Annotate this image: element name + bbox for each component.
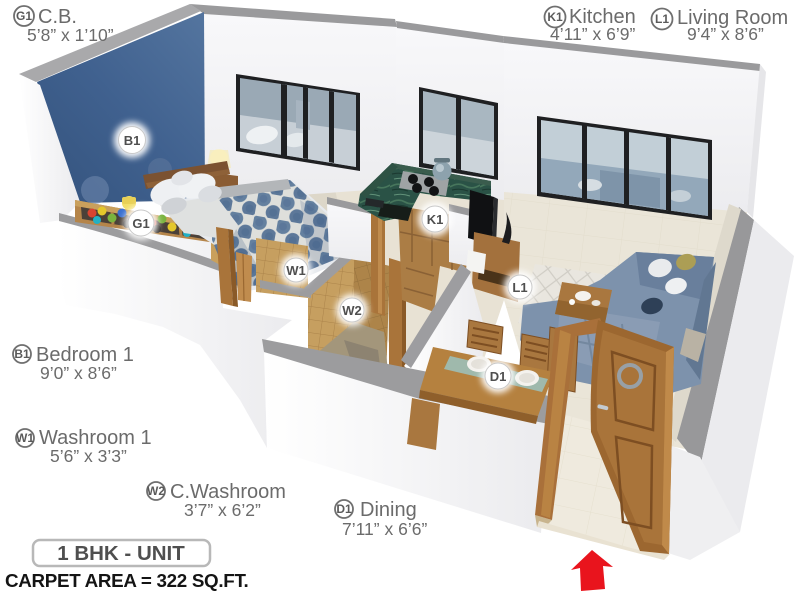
svg-text:K1: K1 bbox=[547, 10, 563, 24]
svg-text:4’11” x 6’9”: 4’11” x 6’9” bbox=[550, 24, 635, 44]
svg-text:G1: G1 bbox=[132, 216, 149, 231]
svg-text:9’0” x 8’6”: 9’0” x 8’6” bbox=[40, 363, 117, 383]
svg-text:L1: L1 bbox=[512, 280, 527, 295]
svg-text:1 BHK - UNIT: 1 BHK - UNIT bbox=[57, 542, 185, 565]
svg-text:W1: W1 bbox=[286, 263, 306, 278]
svg-text:D1: D1 bbox=[336, 502, 352, 516]
svg-text:K1: K1 bbox=[427, 212, 444, 227]
svg-text:B1: B1 bbox=[14, 347, 30, 361]
svg-text:5’8” x 1’10”: 5’8” x 1’10” bbox=[27, 25, 114, 45]
svg-text:W2: W2 bbox=[147, 484, 165, 498]
svg-text:9’4” x 8’6”: 9’4” x 8’6” bbox=[687, 24, 764, 44]
svg-text:7’11” x 6’6”: 7’11” x 6’6” bbox=[342, 519, 427, 539]
svg-text:L1: L1 bbox=[655, 12, 669, 26]
svg-text:B1: B1 bbox=[124, 133, 141, 148]
svg-text:5’6” x 3’3”: 5’6” x 3’3” bbox=[50, 446, 127, 466]
svg-text:G1: G1 bbox=[16, 9, 32, 23]
svg-text:3’7” x 6’2”: 3’7” x 6’2” bbox=[184, 500, 261, 520]
svg-text:W2: W2 bbox=[342, 303, 362, 318]
svg-text:CARPET AREA = 322 SQ.FT.: CARPET AREA = 322 SQ.FT. bbox=[5, 570, 248, 591]
svg-text:Dining: Dining bbox=[360, 499, 417, 521]
svg-text:W1: W1 bbox=[16, 431, 34, 445]
svg-text:D1: D1 bbox=[490, 369, 507, 384]
